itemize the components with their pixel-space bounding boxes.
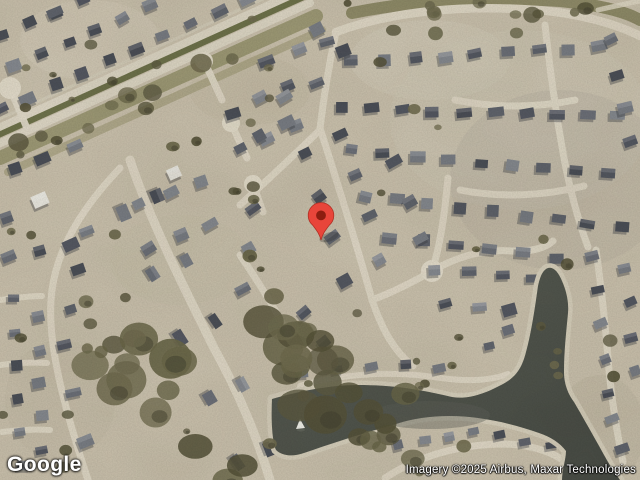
map-viewport[interactable]: Google Imagery ©2025 Airbus, Maxar Techn… [0, 0, 640, 480]
imagery-attribution: Imagery ©2025 Airbus, Maxar Technologies [406, 464, 636, 476]
satellite-map[interactable] [0, 0, 640, 480]
pin-dot [316, 211, 326, 221]
google-logo[interactable]: Google [7, 453, 82, 477]
